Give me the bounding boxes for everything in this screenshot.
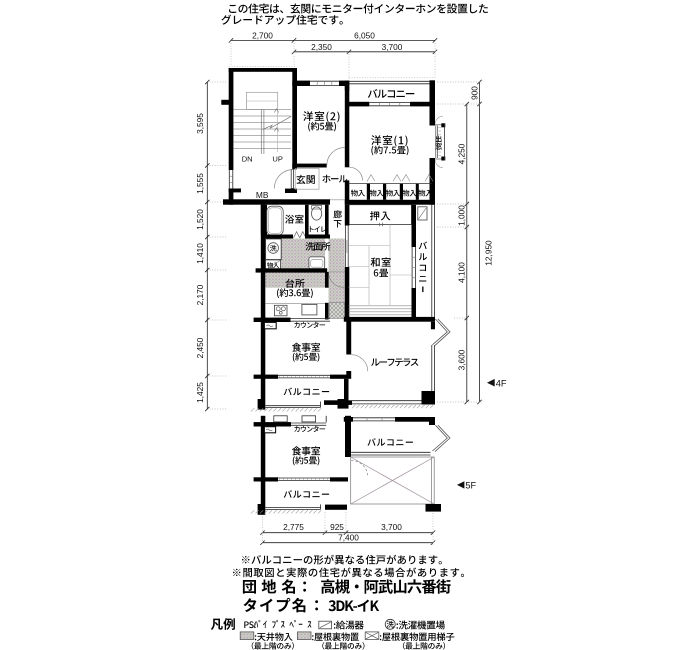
svg-text:2,700: 2,700: [252, 31, 273, 41]
svg-text:925: 925: [330, 522, 344, 532]
svg-text:4,100: 4,100: [456, 262, 466, 283]
svg-text:7,400: 7,400: [338, 533, 359, 543]
svg-text:6,050: 6,050: [354, 31, 375, 41]
svg-text:12,950: 12,950: [483, 240, 493, 266]
svg-text:2,775: 2,775: [283, 522, 304, 532]
svg-text:3,700: 3,700: [382, 42, 403, 52]
svg-text:UP: UP: [272, 155, 283, 164]
svg-text:DN: DN: [242, 155, 253, 164]
svg-text:3,600: 3,600: [456, 349, 466, 370]
svg-text:1,555: 1,555: [195, 173, 205, 194]
svg-text:1,425: 1,425: [195, 382, 205, 403]
svg-text:1,000: 1,000: [456, 205, 466, 226]
svg-text:1,410: 1,410: [195, 243, 205, 264]
svg-text:900: 900: [469, 86, 479, 100]
svg-text:2,350: 2,350: [311, 42, 332, 52]
svg-text:5F: 5F: [465, 480, 476, 490]
svg-text:3,595: 3,595: [195, 113, 205, 134]
svg-text:MB: MB: [256, 190, 269, 200]
svg-text:2,450: 2,450: [195, 337, 205, 358]
svg-text:4,250: 4,250: [456, 143, 466, 164]
svg-text:3,700: 3,700: [381, 522, 402, 532]
svg-text:2,170: 2,170: [195, 284, 205, 305]
svg-text:4F: 4F: [496, 378, 507, 388]
svg-text:1,520: 1,520: [195, 209, 205, 230]
